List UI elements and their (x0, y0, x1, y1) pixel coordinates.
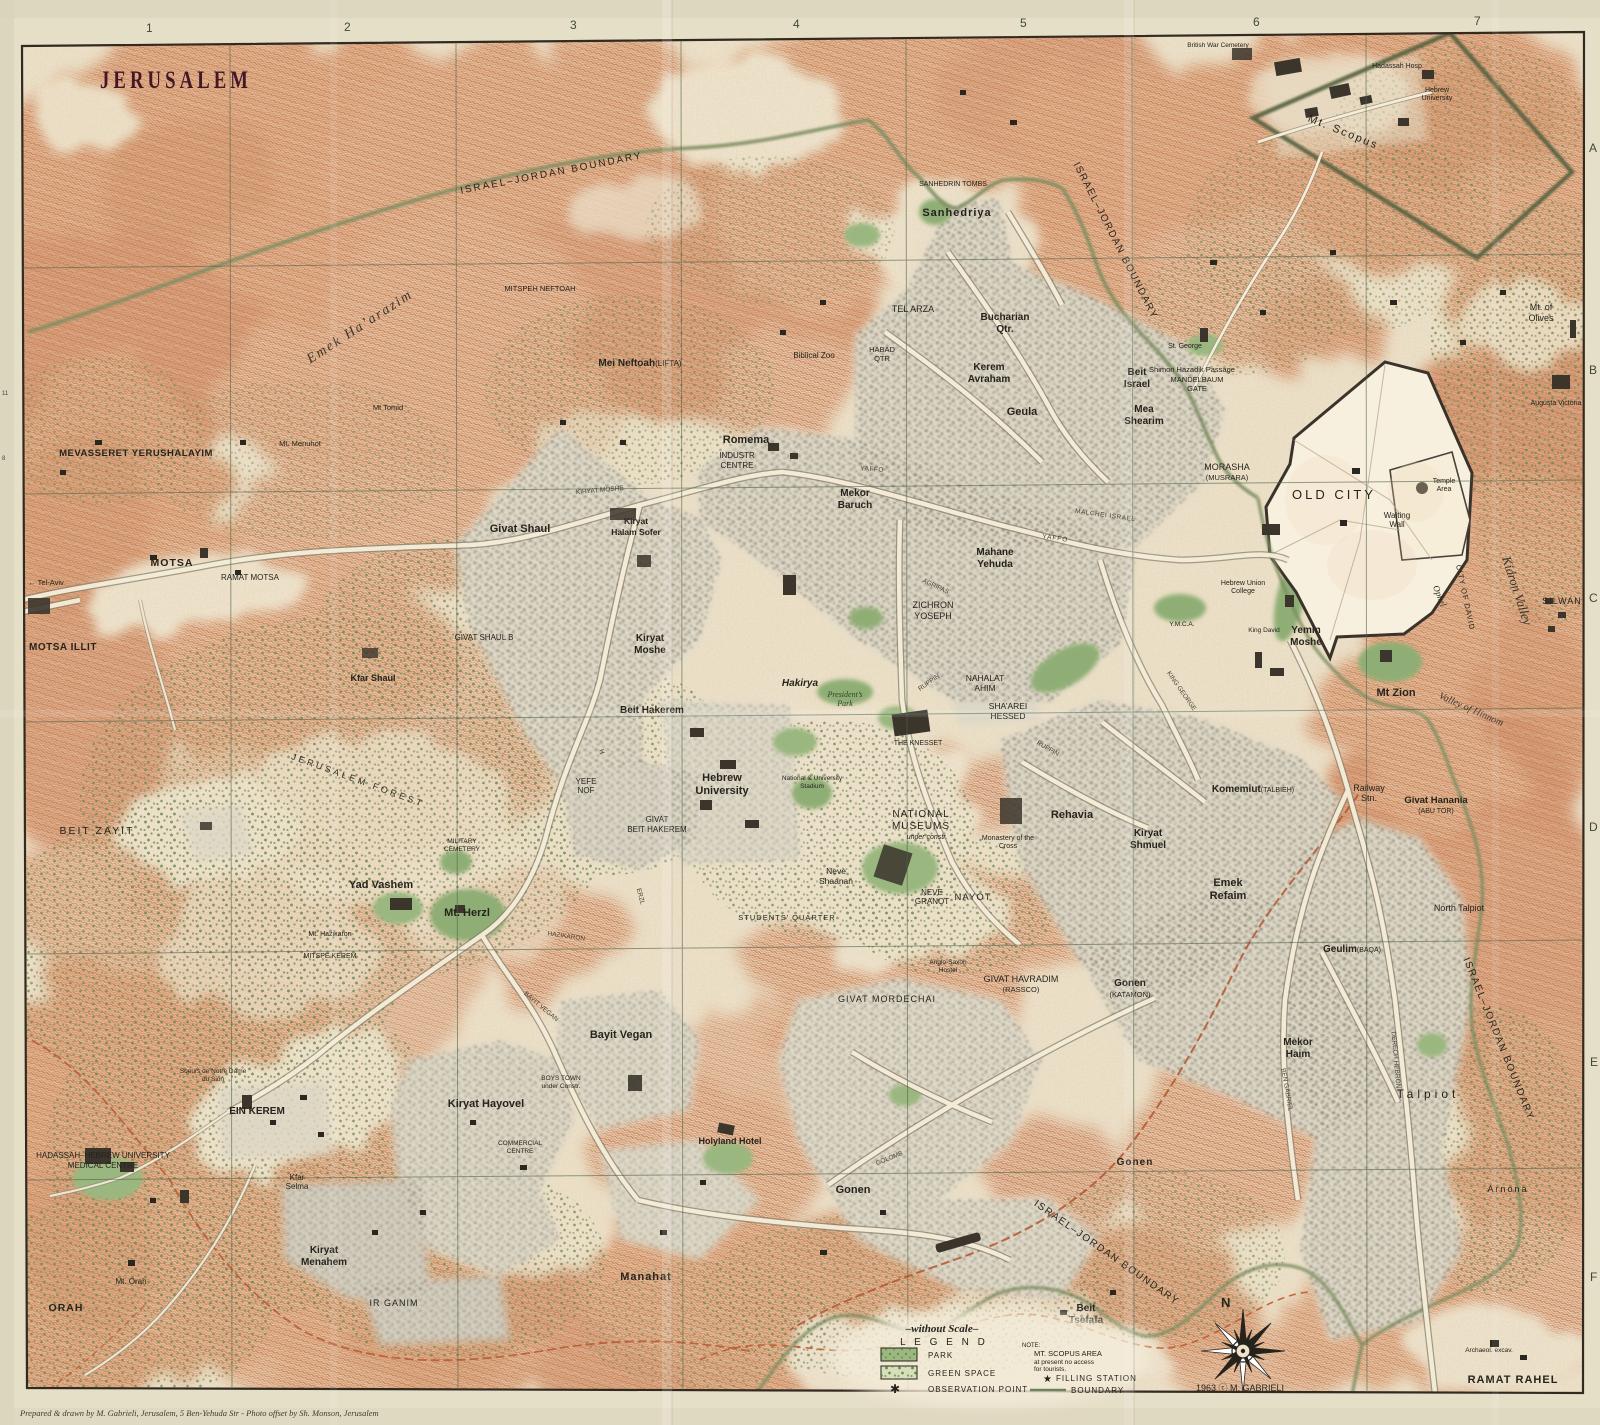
svg-text:Stn.: Stn. (1361, 793, 1377, 803)
svg-text:E: E (1590, 1055, 1598, 1069)
svg-text:Prepared & drawn by M. Gabriel: Prepared & drawn by M. Gabrieli, Jerusal… (19, 1408, 379, 1418)
svg-text:Hostel: Hostel (939, 967, 958, 974)
svg-text:Givat Hanania: Givat Hanania (1404, 795, 1468, 806)
svg-text:Refaim: Refaim (1210, 890, 1247, 902)
svg-text:4: 4 (793, 17, 800, 31)
svg-text:PARK: PARK (928, 1351, 953, 1360)
svg-text:Givat Shaul: Givat Shaul (490, 523, 551, 535)
svg-text:EIN KEREM: EIN KEREM (229, 1106, 285, 1117)
svg-text:St. George: St. George (1168, 343, 1202, 350)
svg-text:President’s: President’s (826, 690, 862, 699)
svg-text:Moshe: Moshe (1290, 637, 1322, 648)
svg-text:SILWAN: SILWAN (1542, 596, 1582, 606)
svg-text:GIVAT MORDECHAI: GIVAT MORDECHAI (838, 994, 936, 1004)
svg-text:Shaanan: Shaanan (819, 876, 853, 886)
svg-text:British War Cemetery: British War Cemetery (1187, 42, 1249, 49)
svg-text:Halam Sofer: Halam Sofer (611, 527, 661, 537)
svg-text:NAYOT: NAYOT (954, 892, 991, 903)
svg-text:NOF: NOF (578, 786, 595, 795)
svg-text:RAMAT MOTSA: RAMAT MOTSA (221, 573, 280, 582)
svg-text:NEVE: NEVE (921, 888, 943, 897)
svg-text:Mt Tomid: Mt Tomid (373, 403, 403, 412)
svg-text:(MUSRARA): (MUSRARA) (1206, 473, 1249, 482)
svg-text:Moshe: Moshe (634, 645, 666, 656)
svg-text:Temple: Temple (1433, 478, 1456, 485)
svg-text:Kiryat: Kiryat (636, 633, 665, 644)
svg-text:HABAD: HABAD (869, 345, 895, 354)
svg-text:Waiting: Waiting (1384, 511, 1410, 520)
svg-text:Holyland Hotel: Holyland Hotel (698, 1136, 761, 1146)
svg-text:NATIONAL: NATIONAL (892, 809, 949, 820)
svg-text:Kiryat: Kiryat (1134, 828, 1163, 839)
svg-text:Yehuda: Yehuda (977, 559, 1013, 570)
svg-text:MEVASSERET YERUSHALAYIM: MEVASSERET YERUSHALAYIM (59, 448, 213, 459)
svg-text:CENTRE: CENTRE (507, 1148, 534, 1155)
svg-text:← Tel-Aviv: ← Tel-Aviv (28, 578, 64, 587)
svg-text:Railway: Railway (1353, 783, 1385, 793)
svg-text:–without Scale–: –without Scale– (905, 1323, 979, 1335)
svg-text:Biblical Zoo: Biblical Zoo (793, 351, 835, 360)
svg-text:University: University (695, 785, 749, 797)
svg-text:GIVAT SHAUL B: GIVAT SHAUL B (455, 633, 514, 642)
svg-text:1: 1 (146, 21, 153, 35)
svg-text:Mahane: Mahane (976, 547, 1014, 558)
svg-text:King David: King David (1248, 627, 1280, 634)
svg-text:Kfar Shaul: Kfar Shaul (350, 673, 395, 683)
svg-text:F: F (1590, 1270, 1597, 1284)
svg-text:University: University (1422, 95, 1453, 102)
svg-text:CENTRE: CENTRE (721, 461, 754, 470)
svg-text:Kfar: Kfar (290, 1173, 305, 1182)
svg-text:Monastery of the: Monastery of the (982, 835, 1034, 842)
svg-text:RAMAT RAHEL: RAMAT RAHEL (1468, 1374, 1559, 1386)
svg-text:(RASSCO): (RASSCO) (1003, 985, 1040, 994)
svg-text:GIVAT HAVRADIM: GIVAT HAVRADIM (984, 974, 1059, 984)
svg-text:MUSEUMS: MUSEUMS (892, 821, 950, 832)
svg-text:Anglo-Saxon: Anglo-Saxon (929, 959, 967, 966)
svg-text:6: 6 (1253, 15, 1260, 29)
svg-text:Hebrew Union: Hebrew Union (1221, 580, 1265, 587)
svg-text:Mea: Mea (1134, 404, 1154, 415)
svg-text:Bayit Vegan: Bayit Vegan (590, 1029, 653, 1041)
svg-text:BEIT HAKEREM: BEIT HAKEREM (627, 825, 687, 834)
svg-text:Shimon Hazadik Passage: Shimon Hazadik Passage (1149, 365, 1235, 374)
svg-text:SANHEDRIN TOMBS: SANHEDRIN TOMBS (919, 181, 987, 188)
svg-text:NAHALAT: NAHALAT (966, 673, 1005, 683)
svg-text:D: D (1589, 820, 1598, 834)
svg-text:Hadassah Hosp.: Hadassah Hosp. (1372, 63, 1424, 70)
svg-text:AHIM: AHIM (974, 683, 995, 693)
svg-text:Cross: Cross (999, 843, 1018, 850)
svg-text:Avraham: Avraham (968, 374, 1011, 385)
svg-text:MILITARY: MILITARY (447, 838, 477, 845)
svg-text:ZICHRON: ZICHRON (913, 600, 954, 610)
svg-text:Sanhedriya: Sanhedriya (922, 207, 991, 219)
svg-text:★: ★ (1043, 1374, 1052, 1385)
svg-text:BOUNDARY: BOUNDARY (1071, 1386, 1124, 1395)
svg-text:Mt. Herzl: Mt. Herzl (444, 907, 490, 919)
svg-text:Mekor: Mekor (840, 488, 870, 499)
svg-text:Yemin: Yemin (1291, 625, 1320, 636)
svg-text:Bucharian: Bucharian (981, 312, 1030, 323)
svg-text:College: College (1231, 588, 1255, 595)
svg-text:Hakirya: Hakirya (782, 678, 819, 689)
svg-text:GREEN SPACE: GREEN SPACE (928, 1369, 996, 1378)
svg-text:5: 5 (1020, 16, 1027, 30)
svg-text:BEIT ZAYIT: BEIT ZAYIT (59, 825, 134, 837)
svg-text:Menahem: Menahem (301, 1257, 347, 1268)
svg-text:HADASSAH–HEBREW UNIVERSITY: HADASSAH–HEBREW UNIVERSITY (36, 1151, 170, 1160)
svg-text:Hebrew: Hebrew (1425, 87, 1450, 94)
svg-text:Talpiot: Talpiot (1397, 1087, 1460, 1101)
svg-text:Yad Vashem: Yad Vashem (349, 879, 413, 891)
svg-text:Kerem: Kerem (973, 362, 1004, 373)
svg-text:MANDELBAUM: MANDELBAUM (1171, 375, 1224, 384)
svg-text:C: C (1589, 591, 1598, 605)
svg-text:BOYS TOWN: BOYS TOWN (541, 1075, 581, 1082)
svg-text:MORASHA: MORASHA (1204, 462, 1250, 472)
svg-text:CEMETERY: CEMETERY (444, 846, 481, 853)
svg-text:INDUSTR: INDUSTR (719, 451, 755, 460)
svg-text:Shmuel: Shmuel (1130, 840, 1166, 851)
svg-text:7: 7 (1474, 14, 1481, 28)
svg-text:11: 11 (2, 391, 9, 397)
svg-text:Selma: Selma (286, 1182, 309, 1191)
svg-text:Park: Park (836, 699, 853, 708)
svg-text:2: 2 (344, 20, 351, 34)
svg-text:Baruch: Baruch (838, 500, 872, 511)
svg-text:B: B (1589, 363, 1597, 377)
svg-text:JERUSALEM: JERUSALEM (100, 67, 252, 94)
svg-text:Kiryat Hayovel: Kiryat Hayovel (448, 1098, 524, 1110)
svg-text:MT. SCOPUS AREA: MT. SCOPUS AREA (1034, 1349, 1102, 1358)
svg-text:GATE: GATE (1187, 384, 1207, 393)
svg-text:at present no access: at present no access (1034, 1359, 1095, 1366)
svg-text:✱: ✱ (890, 1382, 900, 1396)
svg-text:MEDICAL CENTRE: MEDICAL CENTRE (68, 1161, 138, 1170)
svg-text:1963 ⓒ M. GABRIELI: 1963 ⓒ M. GABRIELI (1196, 1383, 1284, 1393)
svg-text:IR GANIM: IR GANIM (369, 1298, 418, 1308)
svg-text:Olives: Olives (1528, 313, 1554, 323)
svg-text:Emek: Emek (1213, 877, 1243, 889)
svg-text:QTR: QTR (874, 354, 890, 363)
svg-text:Neve: Neve (826, 866, 846, 876)
svg-text:Wall: Wall (1389, 520, 1404, 529)
svg-text:YOSEPH: YOSEPH (914, 611, 952, 621)
svg-text:Soeurs de Notre Dame: Soeurs de Notre Dame (180, 1068, 247, 1075)
svg-text:Mt. Menuhot: Mt. Menuhot (279, 439, 322, 448)
svg-text:A: A (1589, 141, 1597, 155)
svg-text:Y.M.C.A.: Y.M.C.A. (1169, 621, 1194, 628)
svg-text:SHA’AREI: SHA’AREI (989, 701, 1028, 711)
svg-text:COMMERCIAL: COMMERCIAL (498, 1140, 542, 1147)
svg-text:for tourists.: for tourists. (1034, 1366, 1066, 1373)
svg-text:MITSPEH NEFTOAH: MITSPEH NEFTOAH (504, 284, 575, 293)
svg-text:National & University: National & University (782, 775, 843, 782)
svg-text:Stadium: Stadium (800, 783, 824, 790)
svg-text:TEL ARZA: TEL ARZA (892, 304, 934, 314)
svg-text:(ABU TOR): (ABU TOR) (1418, 808, 1454, 815)
svg-text:Hebrew: Hebrew (702, 772, 742, 784)
svg-text:Kiryat: Kiryat (624, 516, 648, 526)
svg-text:du Sion: du Sion (202, 1076, 224, 1083)
svg-text:North Talpiot: North Talpiot (1434, 903, 1485, 913)
svg-text:ORAH: ORAH (49, 1302, 84, 1314)
svg-text:Rehavia: Rehavia (1051, 809, 1094, 821)
svg-text:Mt. Orah: Mt. Orah (115, 1277, 146, 1286)
svg-text:Archaeol. excav.: Archaeol. excav. (1465, 1347, 1513, 1354)
svg-text:Haim: Haim (1286, 1049, 1311, 1060)
svg-text:MOTSA ILLIT: MOTSA ILLIT (29, 642, 97, 653)
svg-text:Mt. of: Mt. of (1530, 302, 1553, 312)
svg-text:Romema: Romema (723, 434, 770, 446)
svg-text:Gonen: Gonen (836, 1184, 871, 1196)
svg-text:N: N (1221, 1295, 1230, 1310)
svg-text:Geula: Geula (1007, 406, 1038, 418)
svg-text:STUDENTS’ QUARTER: STUDENTS’ QUARTER (738, 913, 835, 922)
svg-text:L E G E N D: L E G E N D (900, 1337, 988, 1348)
svg-text:3: 3 (570, 18, 577, 32)
svg-text:Qtr.: Qtr. (996, 324, 1013, 335)
svg-text:Mekor: Mekor (1283, 1037, 1313, 1048)
svg-text:GRANOT: GRANOT (915, 897, 949, 906)
svg-text:Beit: Beit (1077, 1303, 1097, 1314)
svg-text:OLD CITY: OLD CITY (1292, 487, 1376, 502)
svg-text:Mt Zion: Mt Zion (1376, 687, 1415, 699)
svg-text:under constr.: under constr. (907, 834, 948, 841)
svg-text:under Constr.: under Constr. (541, 1083, 580, 1090)
svg-text:Area: Area (1437, 486, 1452, 493)
svg-text:THE KNESSET: THE KNESSET (894, 740, 943, 747)
svg-text:OBSERVATION POINT: OBSERVATION POINT (928, 1385, 1028, 1394)
svg-text:YEFE: YEFE (576, 777, 597, 786)
svg-text:Augusta Victoria: Augusta Victoria (1531, 400, 1582, 407)
